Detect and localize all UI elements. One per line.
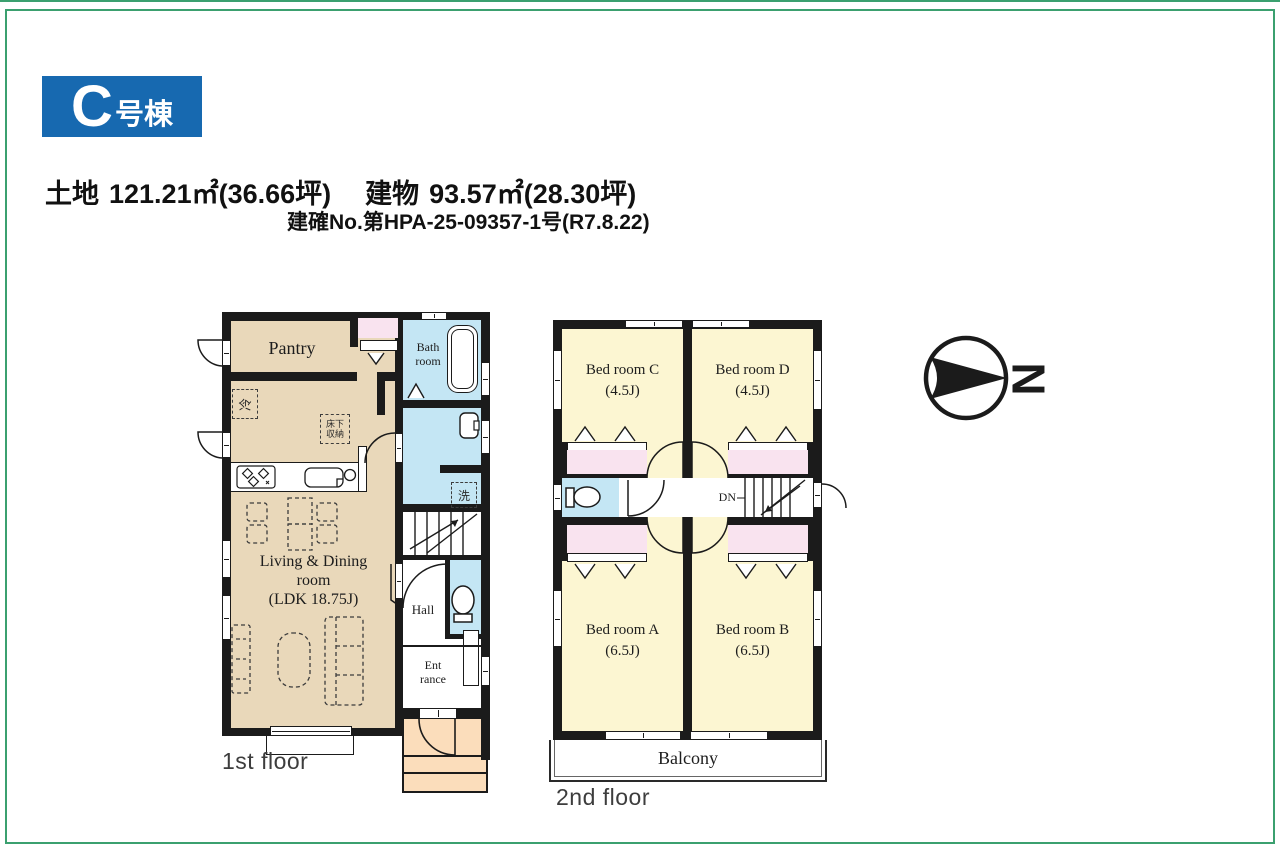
dn-label: DN — [703, 490, 736, 505]
low-table — [278, 633, 310, 687]
floorplan-1f: 冷 床下 収納 洗 — [222, 312, 490, 736]
entrance-label: Ent rance — [403, 658, 463, 687]
bedroom-d-label: Bed room D (4.5J) — [692, 360, 813, 402]
toilet-icon — [566, 487, 600, 507]
flyer-page: C 号棟 土地 121.21㎡(36.66坪) 建物 93.57㎡(28.30坪… — [0, 0, 1280, 848]
stairs-2f — [737, 478, 805, 517]
bedroom-c-label: Bed room C (4.5J) — [562, 360, 683, 402]
sofa-set — [232, 617, 363, 705]
tv-board — [232, 625, 250, 693]
land-label: 土地 — [45, 172, 99, 211]
porch-step — [404, 772, 486, 774]
ldk-label: Living & Dining room (LDK 18.75J) — [232, 552, 395, 610]
bathroom-label: Bath room — [403, 340, 453, 369]
toilet-door-2f — [628, 480, 664, 516]
north-label: N — [1002, 362, 1056, 395]
exterior-door-arc — [822, 484, 846, 508]
stairs-1f — [410, 512, 477, 555]
badge-suffix: 号棟 — [115, 97, 173, 133]
top-border-line — [0, 0, 1280, 2]
toilet-icon — [452, 586, 474, 622]
permit-number: 建確No.第HPA-25-09357-1号(R7.8.22) — [287, 206, 650, 236]
dining-set — [247, 498, 337, 550]
bedroom-b-label: Bed room B (6.5J) — [692, 620, 813, 662]
porch-step — [404, 755, 486, 757]
building-badge: C 号棟 — [42, 76, 202, 137]
balcony: Balcony — [549, 740, 827, 782]
balcony-label: Balcony — [551, 748, 825, 769]
sofa — [325, 617, 363, 705]
closet-door-symbol — [368, 353, 384, 364]
bedroom-a-label: Bed room A (6.5J) — [562, 620, 683, 662]
floorplan-2f: Bed room C (4.5J) Bed room D (4.5J) Bed … — [553, 320, 822, 740]
floor1-caption: 1st floor — [222, 748, 308, 775]
pantry-label: Pantry — [231, 338, 353, 359]
bath-door-symbol — [408, 384, 424, 398]
floor2-caption: 2nd floor — [556, 784, 650, 811]
door-arcs-west — [198, 340, 222, 458]
hall-label: Hall — [400, 602, 446, 618]
badge-letter: C — [71, 81, 113, 133]
washroom-door-arc — [365, 433, 395, 463]
